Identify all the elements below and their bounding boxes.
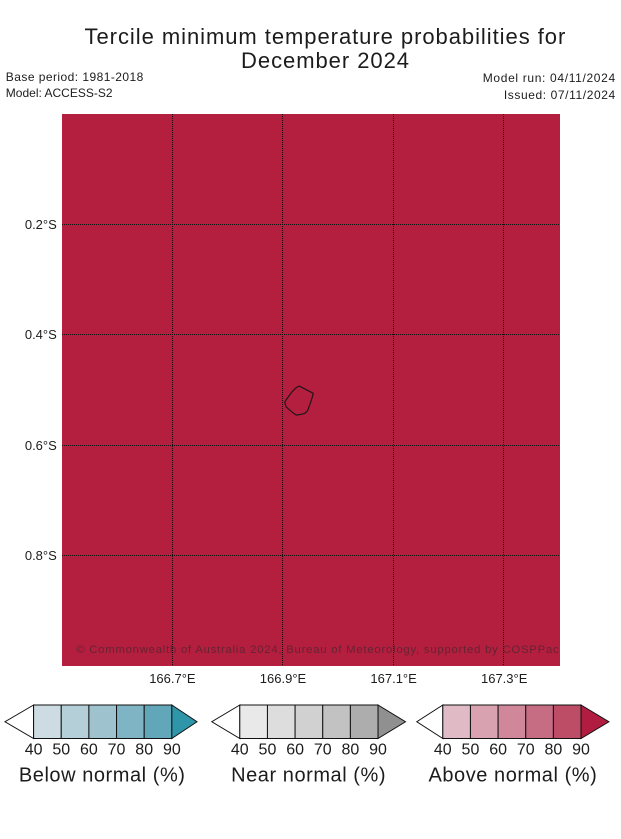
svg-text:40: 40 <box>25 742 43 759</box>
svg-text:50: 50 <box>462 742 480 759</box>
svg-text:80: 80 <box>135 742 153 759</box>
svg-text:80: 80 <box>342 742 360 759</box>
svg-text:90: 90 <box>572 742 590 759</box>
svg-text:90: 90 <box>369 742 387 759</box>
svg-text:Near normal (%): Near normal (%) <box>231 765 386 787</box>
svg-text:40: 40 <box>231 742 249 759</box>
svg-text:60: 60 <box>489 742 507 759</box>
svg-text:50: 50 <box>259 742 277 759</box>
svg-text:60: 60 <box>80 742 98 759</box>
svg-text:70: 70 <box>314 742 332 759</box>
svg-text:80: 80 <box>545 742 563 759</box>
svg-text:Above normal (%): Above normal (%) <box>428 765 597 787</box>
svg-text:70: 70 <box>108 742 126 759</box>
svg-text:60: 60 <box>286 742 304 759</box>
svg-text:70: 70 <box>517 742 535 759</box>
svg-text:50: 50 <box>52 742 70 759</box>
svg-text:90: 90 <box>163 742 181 759</box>
svg-text:40: 40 <box>434 742 452 759</box>
svg-text:Below normal (%): Below normal (%) <box>19 765 186 787</box>
